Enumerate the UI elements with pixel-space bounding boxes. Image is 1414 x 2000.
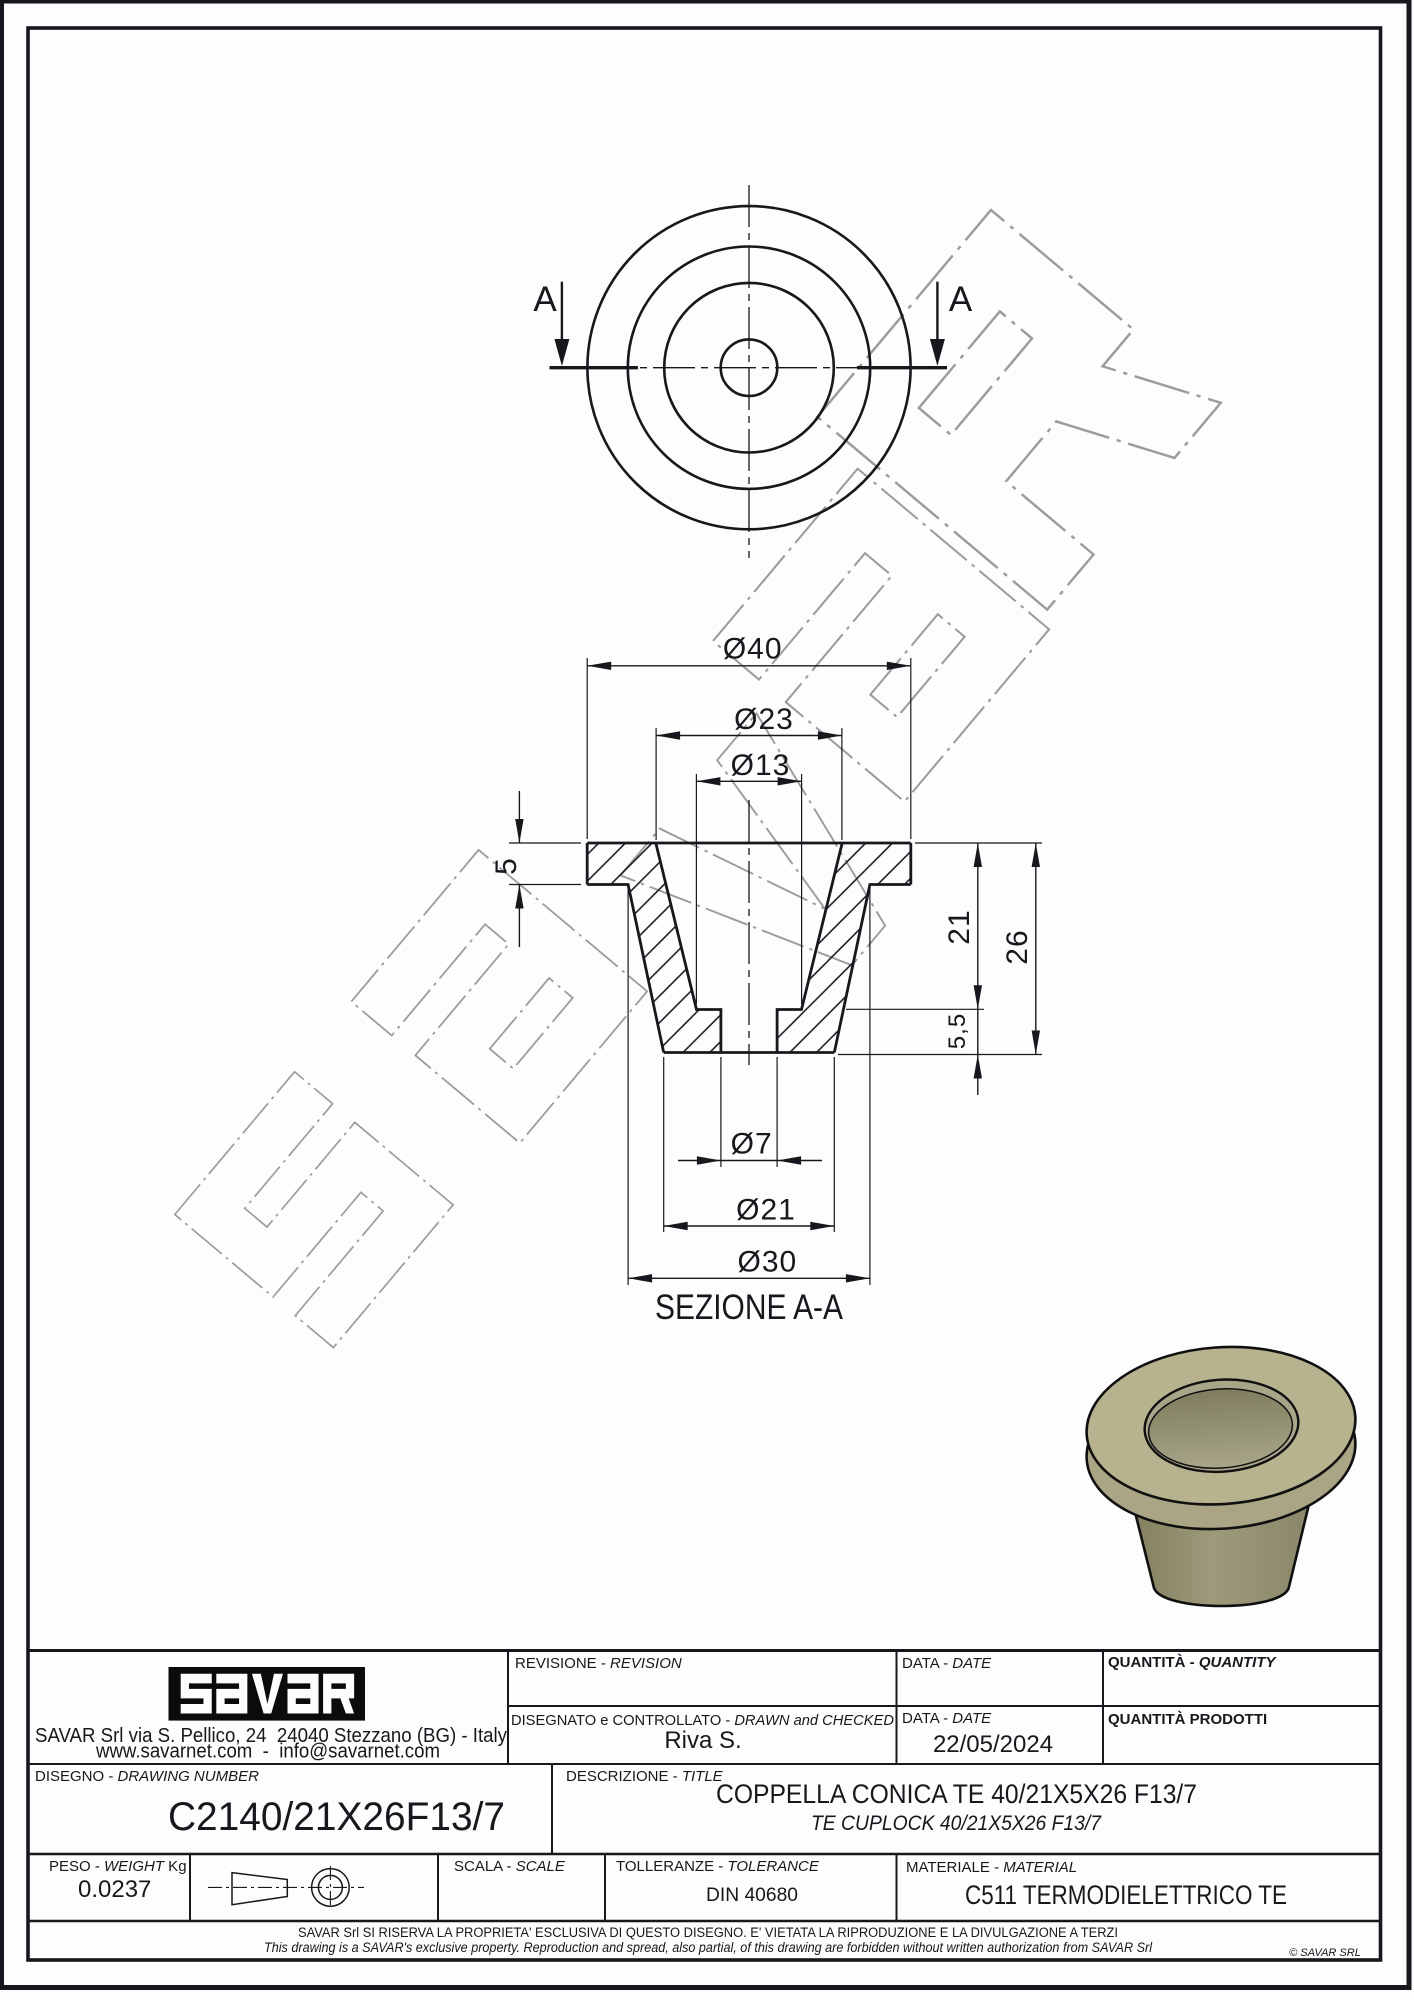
svg-text:Ø21: Ø21 — [736, 1194, 796, 1227]
svg-text:DESCRIZIONE - TITLE: DESCRIZIONE - TITLE — [566, 1768, 724, 1785]
svg-text:22/05/2024: 22/05/2024 — [933, 1731, 1053, 1758]
svg-text:REVISIONE - REVISION: REVISIONE - REVISION — [515, 1655, 682, 1672]
svg-text:DATA - DATE: DATA - DATE — [902, 1655, 992, 1672]
svg-text:COPPELLA CONICA TE 40/21X5X26: COPPELLA CONICA TE 40/21X5X26 F13/7 — [716, 1779, 1197, 1809]
svg-text:www.savarnet.com - info@sava: www.savarnet.com - info@savarnet.com — [95, 1741, 440, 1763]
svg-text:0.0237: 0.0237 — [78, 1876, 151, 1903]
svg-text:C2140/21X26F13/7: C2140/21X26F13/7 — [168, 1795, 505, 1839]
svg-text:26: 26 — [1001, 929, 1034, 964]
svg-text:QUANTITÀ - QUANTITY: QUANTITÀ - QUANTITY — [1108, 1654, 1277, 1671]
svg-text:Ø23: Ø23 — [734, 703, 794, 736]
svg-text:Ø7: Ø7 — [731, 1128, 773, 1161]
svg-text:5,5: 5,5 — [944, 1013, 971, 1049]
svg-text:DIN 40680: DIN 40680 — [706, 1885, 798, 1906]
svg-text:Ø30: Ø30 — [738, 1246, 798, 1279]
svg-text:TOLLERANZE - TOLERANCE: TOLLERANZE - TOLERANCE — [616, 1858, 820, 1875]
svg-text:Ø40: Ø40 — [723, 633, 783, 666]
svg-text:Riva S.: Riva S. — [664, 1727, 741, 1754]
svg-text:TE CUPLOCK 40/21X5X26 F13/7: TE CUPLOCK 40/21X5X26 F13/7 — [811, 1812, 1102, 1835]
svg-text:Ø13: Ø13 — [731, 749, 791, 782]
svg-text:MATERIALE - MATERIAL: MATERIALE - MATERIAL — [906, 1859, 1077, 1876]
svg-text:5: 5 — [490, 857, 523, 875]
svg-text:PESO - WEIGHT Kg: PESO - WEIGHT Kg — [49, 1858, 187, 1875]
svg-text:QUANTITÀ PRODOTTI: QUANTITÀ PRODOTTI — [1108, 1711, 1267, 1728]
svg-text:SEZIONE A-A: SEZIONE A-A — [655, 1288, 844, 1327]
svg-text:21: 21 — [943, 909, 976, 944]
svg-text:© SAVAR SRL: © SAVAR SRL — [1289, 1947, 1361, 1959]
svg-text:A: A — [533, 280, 557, 319]
svg-text:C511 TERMODIELETTRICO TE: C511 TERMODIELETTRICO TE — [965, 1880, 1287, 1910]
svg-text:DATA - DATE: DATA - DATE — [902, 1710, 992, 1727]
svg-text:This drawing is a SAVAR's excl: This drawing is a SAVAR's exclusive prop… — [264, 1940, 1153, 1955]
svg-text:SAVAR Srl SI RISERVA LA PROPRI: SAVAR Srl SI RISERVA LA PROPRIETA' ESCLU… — [298, 1925, 1118, 1940]
svg-text:DISEGNO - DRAWING NUMBER: DISEGNO - DRAWING NUMBER — [35, 1768, 259, 1785]
svg-text:SCALA - SCALE: SCALA - SCALE — [454, 1858, 566, 1875]
svg-text:A: A — [949, 280, 973, 319]
